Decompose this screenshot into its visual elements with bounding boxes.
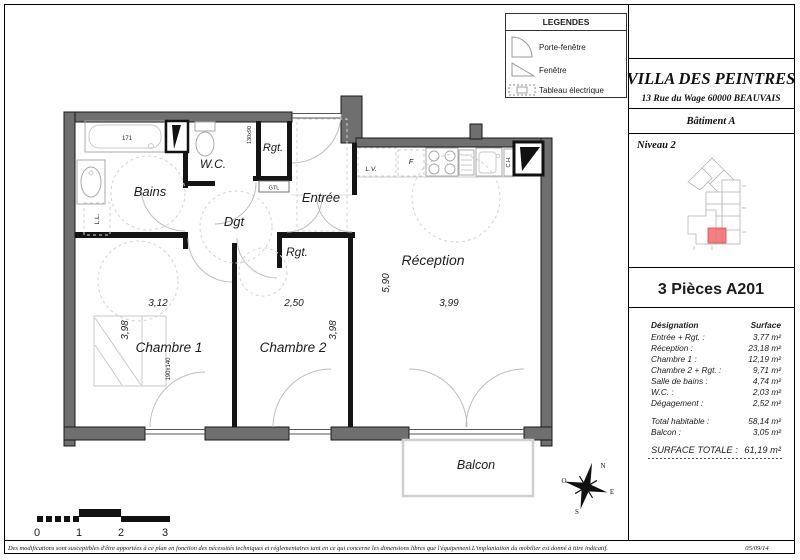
highlighted-unit — [708, 228, 726, 243]
anno-boiler: C.H. — [506, 156, 512, 167]
room-label-reception: Réception — [401, 252, 464, 268]
entry-door — [514, 142, 543, 175]
legend-item-label: Fenêtre — [539, 66, 567, 75]
room-label-wc: W.C. — [200, 157, 226, 171]
dim-reception-width: 3,99 — [439, 298, 459, 309]
room-label-rgt1: Rgt. — [263, 142, 283, 154]
door-swing-arcs — [141, 114, 524, 427]
table-row-label: Dégagement : — [651, 398, 703, 408]
dim-chambre1-width: 3,12 — [148, 298, 168, 309]
anno-washer: L.L. — [94, 213, 101, 224]
dim-chambre2-width: 2,50 — [283, 298, 304, 309]
legend-title: LEGENDES — [543, 17, 590, 27]
scale-bar: 0 1 2 3 — [34, 509, 170, 539]
room-label-dgt: Dgt — [224, 214, 246, 229]
key-plan — [688, 158, 746, 250]
footer-disclaimer: Des modifications sont susceptibles d'êt… — [7, 545, 608, 552]
porte-fenetre-icon — [512, 37, 532, 57]
table-row-value: 23,18 m² — [747, 343, 781, 353]
anno-closet-size: 130x90 — [247, 126, 253, 144]
table-row-label: Réception : — [651, 343, 693, 353]
anno-gtl: GTL — [269, 186, 280, 192]
kitchen-counter — [358, 148, 516, 176]
toilet — [195, 122, 215, 156]
room-label-chambre1: Chambre 1 — [136, 340, 203, 355]
level-label: Niveau 2 — [636, 140, 677, 151]
room-label-rgt2: Rgt. — [286, 245, 308, 259]
dim-chambre1-height: 3,98 — [120, 320, 131, 340]
anno-fridge: F — [409, 157, 414, 166]
table-header-surface: Surface — [751, 320, 782, 330]
floor-plan-drawing: LEGENDES Porte-fenêtre Fenêtre Tableau é… — [0, 0, 800, 560]
room-label-entree: Entrée — [302, 190, 340, 205]
table-total-value: 61,19 m² — [744, 445, 782, 455]
compass-rose: N O E S — [559, 457, 614, 516]
room-label-bains: Bains — [134, 184, 167, 199]
bath-door — [166, 121, 188, 152]
compass-north-label: N — [600, 462, 605, 470]
table-row-label: Chambre 1 : — [651, 354, 697, 364]
footer-date: 05/09/14 — [745, 545, 769, 552]
table-row-value: 2,03 m² — [752, 387, 781, 397]
table-subtotal-value: 58,14 m² — [748, 416, 781, 426]
legend-item-label: Tableau électrique — [539, 86, 604, 95]
table-row-label: Entrée + Rgt. : — [651, 332, 705, 342]
legend-panel: LEGENDES Porte-fenêtre Fenêtre Tableau é… — [506, 14, 627, 98]
dim-chambre2-height: 3,98 — [328, 320, 339, 340]
anno-bed-size: 190x140 — [166, 357, 172, 381]
table-row-label: W.C. : — [651, 387, 674, 397]
room-label-balcon: Balcon — [457, 458, 495, 472]
footer-strip: Des modifications sont susceptibles d'êt… — [7, 545, 769, 552]
project-address: 13 Rue du Wage 60000 BEAUVAIS — [641, 94, 780, 104]
table-row-value: 4,74 m² — [753, 376, 781, 386]
unit-title: 3 Pièces A201 — [658, 281, 764, 298]
tableau-electrique-icon — [509, 85, 535, 95]
table-subtotal-value: 3,05 m² — [753, 427, 781, 437]
table-row-value: 2,52 m² — [752, 398, 781, 408]
project-title: VILLA DES PEINTRES — [627, 69, 796, 88]
table-row-label: Chambre 2 + Rgt. : — [651, 365, 721, 375]
compass-east-label: E — [610, 488, 614, 496]
scale-label-1: 1 — [76, 527, 82, 539]
washbasin — [77, 160, 105, 204]
anno-dishwasher: L.V. — [365, 166, 376, 173]
surface-table: Désignation Surface Entrée + Rgt. : 3,77… — [648, 320, 782, 459]
table-header-designation: Désignation — [651, 320, 698, 330]
scale-label-2: 2 — [118, 527, 124, 539]
room-label-chambre2: Chambre 2 — [260, 340, 327, 355]
compass-west-label: O — [561, 477, 566, 485]
table-row-value: 3,77 m² — [753, 332, 781, 342]
scale-label-0: 0 — [34, 527, 40, 539]
scale-label-3: 3 — [162, 527, 168, 539]
compass-south-label: S — [575, 508, 579, 516]
table-row-label: Salle de bains : — [651, 376, 708, 386]
table-row-value: 12,19 m² — [748, 354, 781, 364]
table-total-label: SURFACE TOTALE : — [651, 445, 738, 455]
dim-reception-height: 5,90 — [381, 273, 392, 293]
anno-bathtub: 171 — [122, 136, 133, 142]
clearance-circles — [98, 119, 514, 321]
building-label: Bâtiment A — [686, 116, 736, 127]
table-row-value: 9,71 m² — [753, 365, 781, 375]
plan-sheet: LEGENDES Porte-fenêtre Fenêtre Tableau é… — [0, 0, 800, 560]
fenetre-icon — [512, 63, 534, 76]
legend-item-label: Porte-fenêtre — [539, 43, 586, 52]
table-subtotal-label: Balcon : — [651, 427, 681, 437]
table-subtotal-label: Total habitable : — [651, 416, 709, 426]
